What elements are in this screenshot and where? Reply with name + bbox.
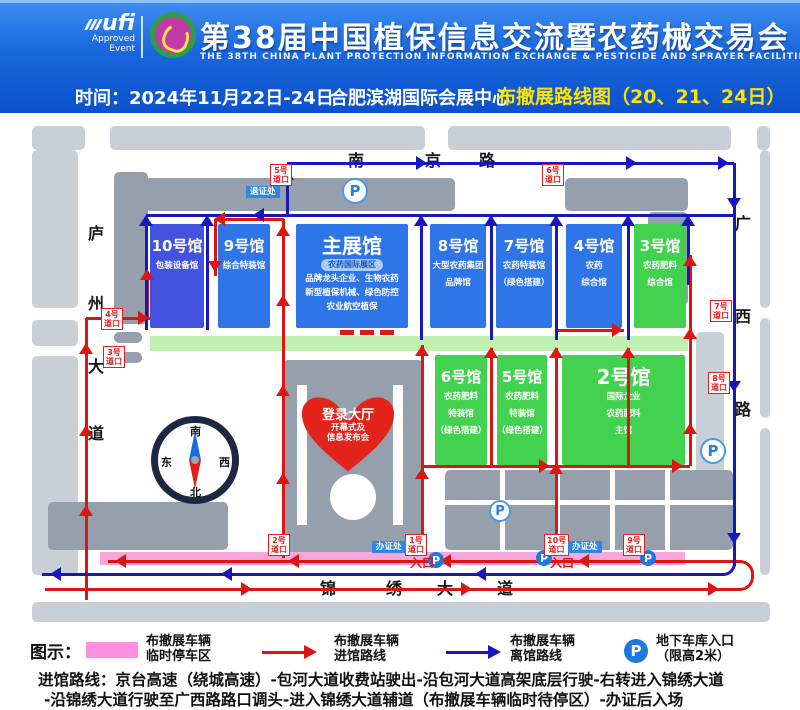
route-arrowhead bbox=[276, 385, 290, 396]
city-block bbox=[757, 126, 770, 150]
hall-subtitle: 大型农药集团 bbox=[432, 261, 483, 272]
route-arrowhead bbox=[221, 567, 232, 581]
legend-item-2-text: 布撤展车辆进馆路线 bbox=[334, 634, 399, 664]
route-arrowhead bbox=[475, 567, 486, 581]
hall-name: 6号馆 bbox=[441, 369, 481, 386]
hall-hall4: 4号馆农药综合馆 bbox=[566, 224, 622, 328]
gate-label: 5号 道口 bbox=[270, 164, 292, 186]
hall-name: 2号馆 bbox=[597, 369, 651, 386]
route-arrowhead bbox=[461, 582, 472, 596]
hall-main-hall: 主展馆农药国际展区品牌龙头企业、生物农药新型植保机械、绿色防控农业航空植保 bbox=[296, 224, 408, 328]
route-arrowhead bbox=[288, 554, 299, 568]
hall-hall10: 10号馆包装设备馆 bbox=[150, 224, 204, 328]
route-arrowhead bbox=[621, 347, 635, 358]
certificate-station-label: 办证处 bbox=[372, 541, 406, 553]
route-arrowhead bbox=[415, 468, 429, 479]
route-line bbox=[287, 162, 734, 165]
gate-label: 3号 道口 bbox=[103, 346, 125, 368]
route-arrowhead bbox=[214, 212, 225, 226]
route-arrowhead bbox=[241, 582, 252, 596]
hall-subtitle: （绿色搭建） bbox=[498, 278, 549, 289]
certificate-station-label: 办证处 bbox=[568, 541, 602, 553]
hall-subtitle: 包装设备馆 bbox=[156, 261, 199, 272]
fair-emblem-icon bbox=[150, 12, 196, 58]
route-arrowhead bbox=[484, 215, 498, 226]
road-name-guangxi: 西 bbox=[735, 303, 751, 327]
page-subtitle-en: THE 38TH CHINA PLANT PROTECTION INFORMAT… bbox=[200, 52, 770, 62]
route-arrowhead bbox=[276, 225, 290, 236]
route-arrowhead bbox=[708, 582, 719, 596]
route-arrowhead bbox=[414, 215, 428, 226]
ufi-event-text: Event bbox=[57, 44, 135, 54]
hall-subtitle: 农药肥料 bbox=[444, 392, 478, 403]
route-line bbox=[687, 218, 690, 285]
hall-hall9: 9号馆综合特装馆 bbox=[218, 224, 270, 328]
route-line bbox=[42, 573, 724, 576]
legend-blue-arrow-icon bbox=[446, 651, 490, 654]
route-arrowhead bbox=[416, 156, 427, 170]
route-arrowhead bbox=[612, 323, 623, 337]
gate-label: 2号 道口 bbox=[268, 534, 290, 556]
city-block bbox=[32, 602, 770, 622]
city-block bbox=[760, 318, 770, 418]
hall-subtitle: 品牌龙头企业、生物农药 bbox=[305, 274, 399, 285]
legend-parking-zone-swatch bbox=[86, 642, 138, 658]
hall-name: 3号馆 bbox=[640, 238, 680, 255]
route-line bbox=[421, 345, 424, 552]
road-name-guangxi: 广 bbox=[735, 210, 751, 234]
route-arrowhead bbox=[626, 156, 637, 170]
login-hall-sub1: 开幕式及 bbox=[300, 423, 396, 433]
building-detail bbox=[610, 470, 615, 550]
gate-label: 9号 道口 bbox=[623, 534, 645, 556]
compass-needle-icon bbox=[158, 423, 232, 497]
header-banner: ufi Approved Event 第38届中国植保信息交流暨农药械交易会 T… bbox=[0, 0, 800, 113]
route-arrowhead bbox=[79, 343, 93, 354]
city-block bbox=[32, 150, 78, 308]
compass: 南 北 东 西 bbox=[151, 416, 239, 504]
hall-subtitle: 品牌馆 bbox=[445, 278, 471, 289]
route-arrowhead bbox=[683, 255, 697, 266]
route-corner bbox=[722, 563, 736, 576]
building-block bbox=[114, 332, 142, 343]
route-line bbox=[627, 218, 630, 340]
route-line bbox=[206, 218, 209, 330]
route-arrowhead bbox=[727, 533, 741, 544]
legend-item-3-text: 布撤展车辆离馆路线 bbox=[510, 634, 575, 664]
route-arrowhead bbox=[718, 156, 729, 170]
route-line bbox=[555, 218, 558, 340]
event-time: 时间：2024年11月22日-24日 bbox=[75, 84, 334, 110]
hall-subtitle: 综合特装馆 bbox=[223, 261, 266, 272]
hall-subtitle: 特装馆 bbox=[509, 409, 535, 420]
route-info-line1: 进馆路线：京台高速（绕城高速）-包河大道收费站驶出-沿包河大道高架底层行驶-右转… bbox=[38, 668, 724, 690]
building-detail bbox=[445, 500, 733, 505]
route-arrowhead bbox=[208, 261, 222, 272]
hall-name: 7号馆 bbox=[504, 238, 544, 255]
certificate-station-label: 退证处 bbox=[246, 186, 280, 198]
hall-name: 主展馆 bbox=[322, 238, 382, 255]
event-venue: 合肥滨湖国际会展中心 bbox=[330, 84, 510, 110]
hall-subtitle: 新型植保机械、绿色防控 bbox=[305, 288, 399, 299]
city-block bbox=[760, 428, 770, 575]
login-hall-title: 登录大厅 bbox=[300, 408, 396, 423]
legend-item-1-text: 布撤展车辆临时停车区 bbox=[146, 634, 211, 664]
road-name-guangxi: 路 bbox=[735, 396, 751, 420]
gate-label: 8号 道口 bbox=[708, 372, 730, 394]
ufi-logo: ufi Approved Event bbox=[57, 14, 135, 66]
route-arrowhead bbox=[683, 423, 697, 434]
route-arrowhead bbox=[484, 347, 498, 358]
route-arrowhead bbox=[140, 269, 154, 280]
route-line bbox=[555, 348, 558, 552]
parking-icon: P bbox=[700, 438, 726, 464]
route-line bbox=[490, 218, 493, 340]
parking-icon: P bbox=[489, 500, 511, 522]
login-hall-sub2: 信息发布会 bbox=[300, 433, 396, 443]
hall-subtitle: 农业航空植保 bbox=[326, 302, 377, 313]
hall-subtitle: （绿色搭建） bbox=[497, 426, 547, 437]
logo-divider bbox=[141, 16, 143, 58]
route-arrowhead bbox=[138, 311, 149, 325]
legend-label: 图示： bbox=[30, 638, 81, 663]
route-arrowhead bbox=[549, 347, 563, 358]
red-dash bbox=[360, 330, 374, 335]
route-line bbox=[490, 348, 493, 466]
city-block bbox=[32, 320, 78, 346]
login-hall-heart: 登录大厅 开幕式及 信息发布会 bbox=[300, 396, 396, 474]
legend-red-arrow-icon bbox=[262, 651, 306, 654]
hall-subtitle: 特装馆 bbox=[448, 409, 474, 420]
gate-label: 6号 道口 bbox=[542, 164, 564, 186]
hall-subtitle: 综合馆 bbox=[647, 278, 673, 289]
road-name-nanjing: 路 bbox=[479, 147, 495, 171]
hall-name: 9号馆 bbox=[224, 238, 264, 255]
building-detail bbox=[330, 474, 376, 520]
route-arrowhead bbox=[672, 459, 683, 473]
route-arrowhead bbox=[276, 295, 290, 306]
route-arrowhead bbox=[621, 215, 635, 226]
gate-label: 7号 道口 bbox=[710, 300, 732, 322]
building-block bbox=[48, 502, 228, 550]
poster: ufi Approved Event 第38届中国植保信息交流暨农药械交易会 T… bbox=[0, 0, 800, 709]
gate-label: 4号 道口 bbox=[101, 308, 123, 330]
route-arrowhead bbox=[253, 208, 264, 222]
hall-subtitle: （绿色搭建） bbox=[435, 426, 486, 437]
route-arrowhead bbox=[50, 567, 61, 581]
hall-name: 10号馆 bbox=[152, 238, 203, 255]
route-arrowhead bbox=[578, 554, 589, 568]
city-block bbox=[32, 126, 85, 150]
hall-hall3: 3号馆农药肥料综合馆 bbox=[634, 224, 686, 328]
ufi-approved-text: Approved bbox=[57, 34, 135, 44]
hall-name: 4号馆 bbox=[574, 238, 614, 255]
route-arrowhead bbox=[549, 215, 563, 226]
route-arrowhead bbox=[276, 473, 290, 484]
page-title: 第38届中国植保信息交流暨农药械交易会 bbox=[200, 13, 770, 57]
entrance-label: 入口 bbox=[410, 554, 434, 571]
route-map-title: 布撤展路线图（20、21、24日） bbox=[497, 82, 785, 109]
temporary-parking-strip bbox=[100, 552, 685, 565]
route-line bbox=[627, 348, 630, 466]
route-line bbox=[689, 255, 692, 466]
road-name-luzhou: 庐 bbox=[88, 220, 104, 244]
ufi-brand-text: ufi bbox=[102, 11, 135, 36]
route-line bbox=[215, 218, 284, 221]
route-arrowhead bbox=[79, 425, 93, 436]
route-arrowhead bbox=[139, 215, 153, 226]
hall-subtitle: 农药 bbox=[585, 261, 602, 272]
parking-icon: P bbox=[342, 178, 368, 204]
red-dash bbox=[380, 330, 394, 335]
city-block bbox=[760, 150, 770, 308]
hall-hall6: 6号馆农药肥料特装馆（绿色搭建） bbox=[435, 355, 487, 465]
route-arrowhead bbox=[549, 463, 563, 474]
road-name-nanjing: 南 bbox=[348, 147, 364, 171]
legend-item-4-text: 地下车库入口（限高2米） bbox=[656, 634, 734, 664]
route-arrowhead bbox=[681, 215, 695, 226]
building-detail bbox=[665, 470, 670, 550]
route-arrowhead bbox=[539, 459, 550, 473]
city-block bbox=[110, 126, 425, 150]
route-arrowhead bbox=[115, 554, 126, 568]
hall-name: 5号馆 bbox=[502, 369, 542, 386]
header-top-stripe bbox=[0, 0, 800, 3]
gate-label: 10号 道口 bbox=[544, 534, 569, 556]
route-arrowhead bbox=[683, 328, 697, 339]
entrance-label: 入口 bbox=[550, 554, 574, 571]
hall-subtitle: 农药肥料 bbox=[505, 392, 539, 403]
hall-hall2: 2号馆国际企业农药肥料主馆 bbox=[562, 355, 685, 465]
building-block bbox=[145, 178, 455, 211]
building-block bbox=[114, 172, 148, 324]
route-arrowhead bbox=[200, 215, 214, 226]
red-dash bbox=[340, 330, 354, 335]
building-block bbox=[638, 484, 668, 532]
hall-hall7: 7号馆农药特装馆（绿色搭建） bbox=[496, 224, 552, 328]
route-info-line2: -沿锦绣大道行驶至广西路路口调头-进入锦绣大道辅道（布撤展车辆临时待停区）-办证… bbox=[44, 688, 683, 710]
hall-subtitle: 农药肥料 bbox=[606, 409, 640, 420]
route-arrowhead bbox=[79, 505, 93, 516]
building-block bbox=[565, 178, 688, 211]
route-arrowhead bbox=[415, 345, 429, 356]
road-name-luzhou: 大 bbox=[88, 353, 104, 377]
hall-hall5: 5号馆农药肥料特装馆（绿色搭建） bbox=[497, 355, 547, 465]
hall-badge: 农药国际展区 bbox=[321, 259, 383, 271]
route-line bbox=[45, 588, 740, 591]
route-uturn bbox=[740, 560, 754, 591]
hall-subtitle: 国际企业 bbox=[606, 392, 640, 403]
hall-hall8: 8号馆大型农药集团品牌馆 bbox=[430, 224, 486, 328]
hall-subtitle: 综合馆 bbox=[581, 278, 607, 289]
gate-label: 1号 道口 bbox=[405, 534, 427, 556]
legend-parking-icon: P bbox=[624, 639, 648, 663]
road-name-nanjing: 京 bbox=[425, 147, 441, 171]
route-line bbox=[146, 214, 734, 217]
hall-subtitle: 农药特装馆 bbox=[503, 261, 546, 272]
route-arrowhead bbox=[727, 198, 741, 209]
route-line bbox=[420, 218, 423, 340]
route-line bbox=[733, 163, 736, 566]
hall-name: 8号馆 bbox=[438, 238, 478, 255]
hall-subtitle: 农药肥料 bbox=[643, 261, 677, 272]
route-line bbox=[85, 318, 88, 600]
